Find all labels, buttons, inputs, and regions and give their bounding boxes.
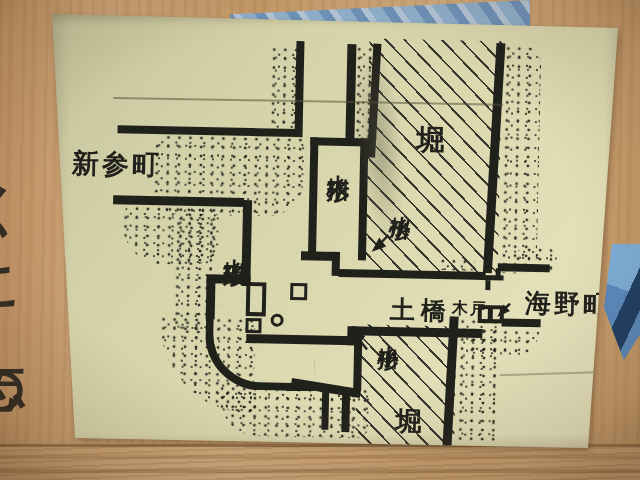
label-town-left: 新参町 — [71, 145, 162, 183]
map-drawing-layer: 新参町 堀 大枡形 小枡形 大枡形 土橋 木戸 海野町 小枡形 堀 — [48, 14, 623, 464]
label-masugata-large-left: 大枡形 — [220, 239, 251, 249]
sign-wrapper: 新参町 堀 大枡形 小枡形 大枡形 土橋 木戸 海野町 小枡形 堀 — [0, 0, 640, 480]
map-sign-paper: 新参町 堀 大枡形 小枡形 大枡形 土橋 木戸 海野町 小枡形 堀 — [52, 12, 618, 450]
label-moat-top: 堀 — [416, 121, 446, 162]
photo-of-map-sign: { "colors": { "paper": "#d9d6ae", "ink":… — [0, 0, 640, 480]
label-wooden-gate: 木戸 — [452, 298, 488, 320]
label-town-right: 海野町 — [525, 286, 613, 323]
label-moat-bottom: 堀 — [395, 403, 423, 440]
